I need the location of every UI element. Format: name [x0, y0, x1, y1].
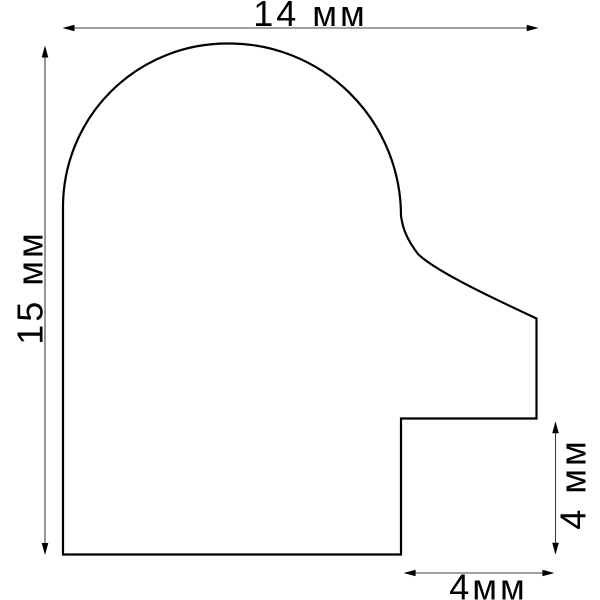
svg-text:4мм: 4мм	[449, 567, 528, 600]
svg-text:14 мм: 14 мм	[253, 0, 368, 34]
svg-text:15 мм: 15 мм	[10, 230, 51, 345]
svg-text:4 мм: 4 мм	[553, 438, 594, 530]
